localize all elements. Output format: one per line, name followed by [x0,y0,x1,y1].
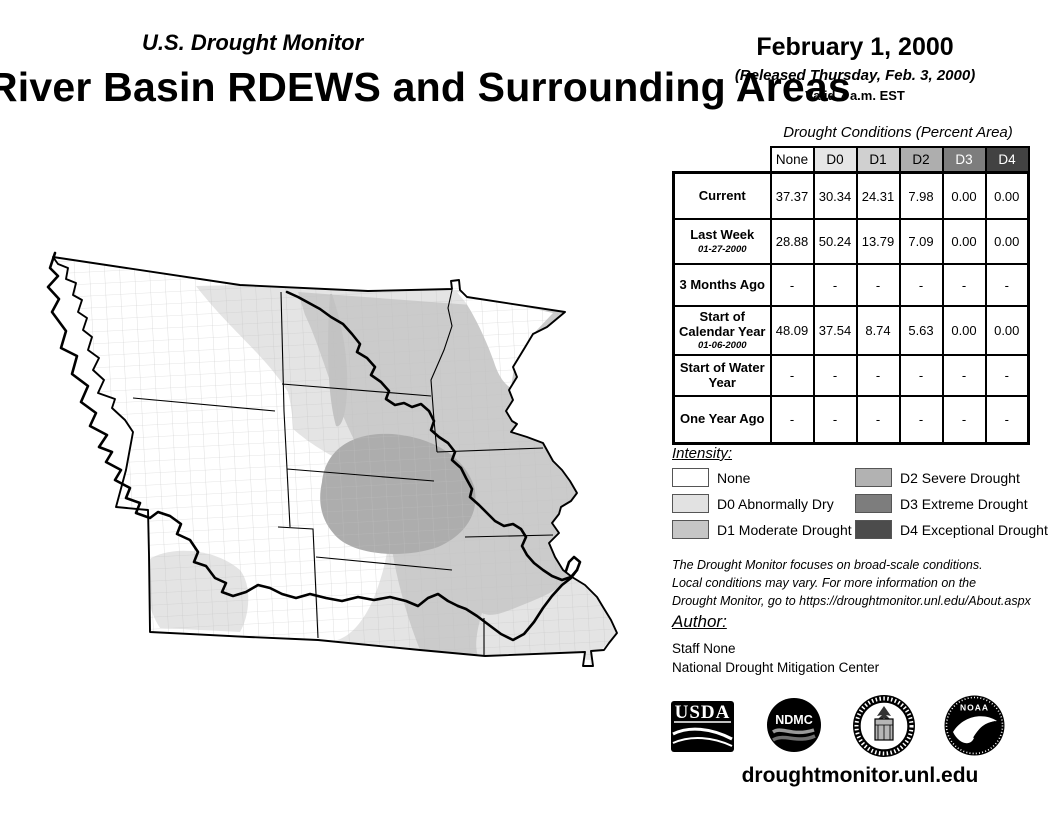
county-lines-overlay [40,246,630,682]
basin-map [0,0,1056,816]
report-date: February 1, 2000 [705,33,1005,62]
map-title: River Basin RDEWS and Surrounding Areas [0,64,851,111]
basin-map-svg [0,0,1056,816]
monitor-title: U.S. Drought Monitor [142,30,363,56]
drought-monitor-report: U.S. Drought Monitor February 1, 2000 (R… [0,0,1056,816]
